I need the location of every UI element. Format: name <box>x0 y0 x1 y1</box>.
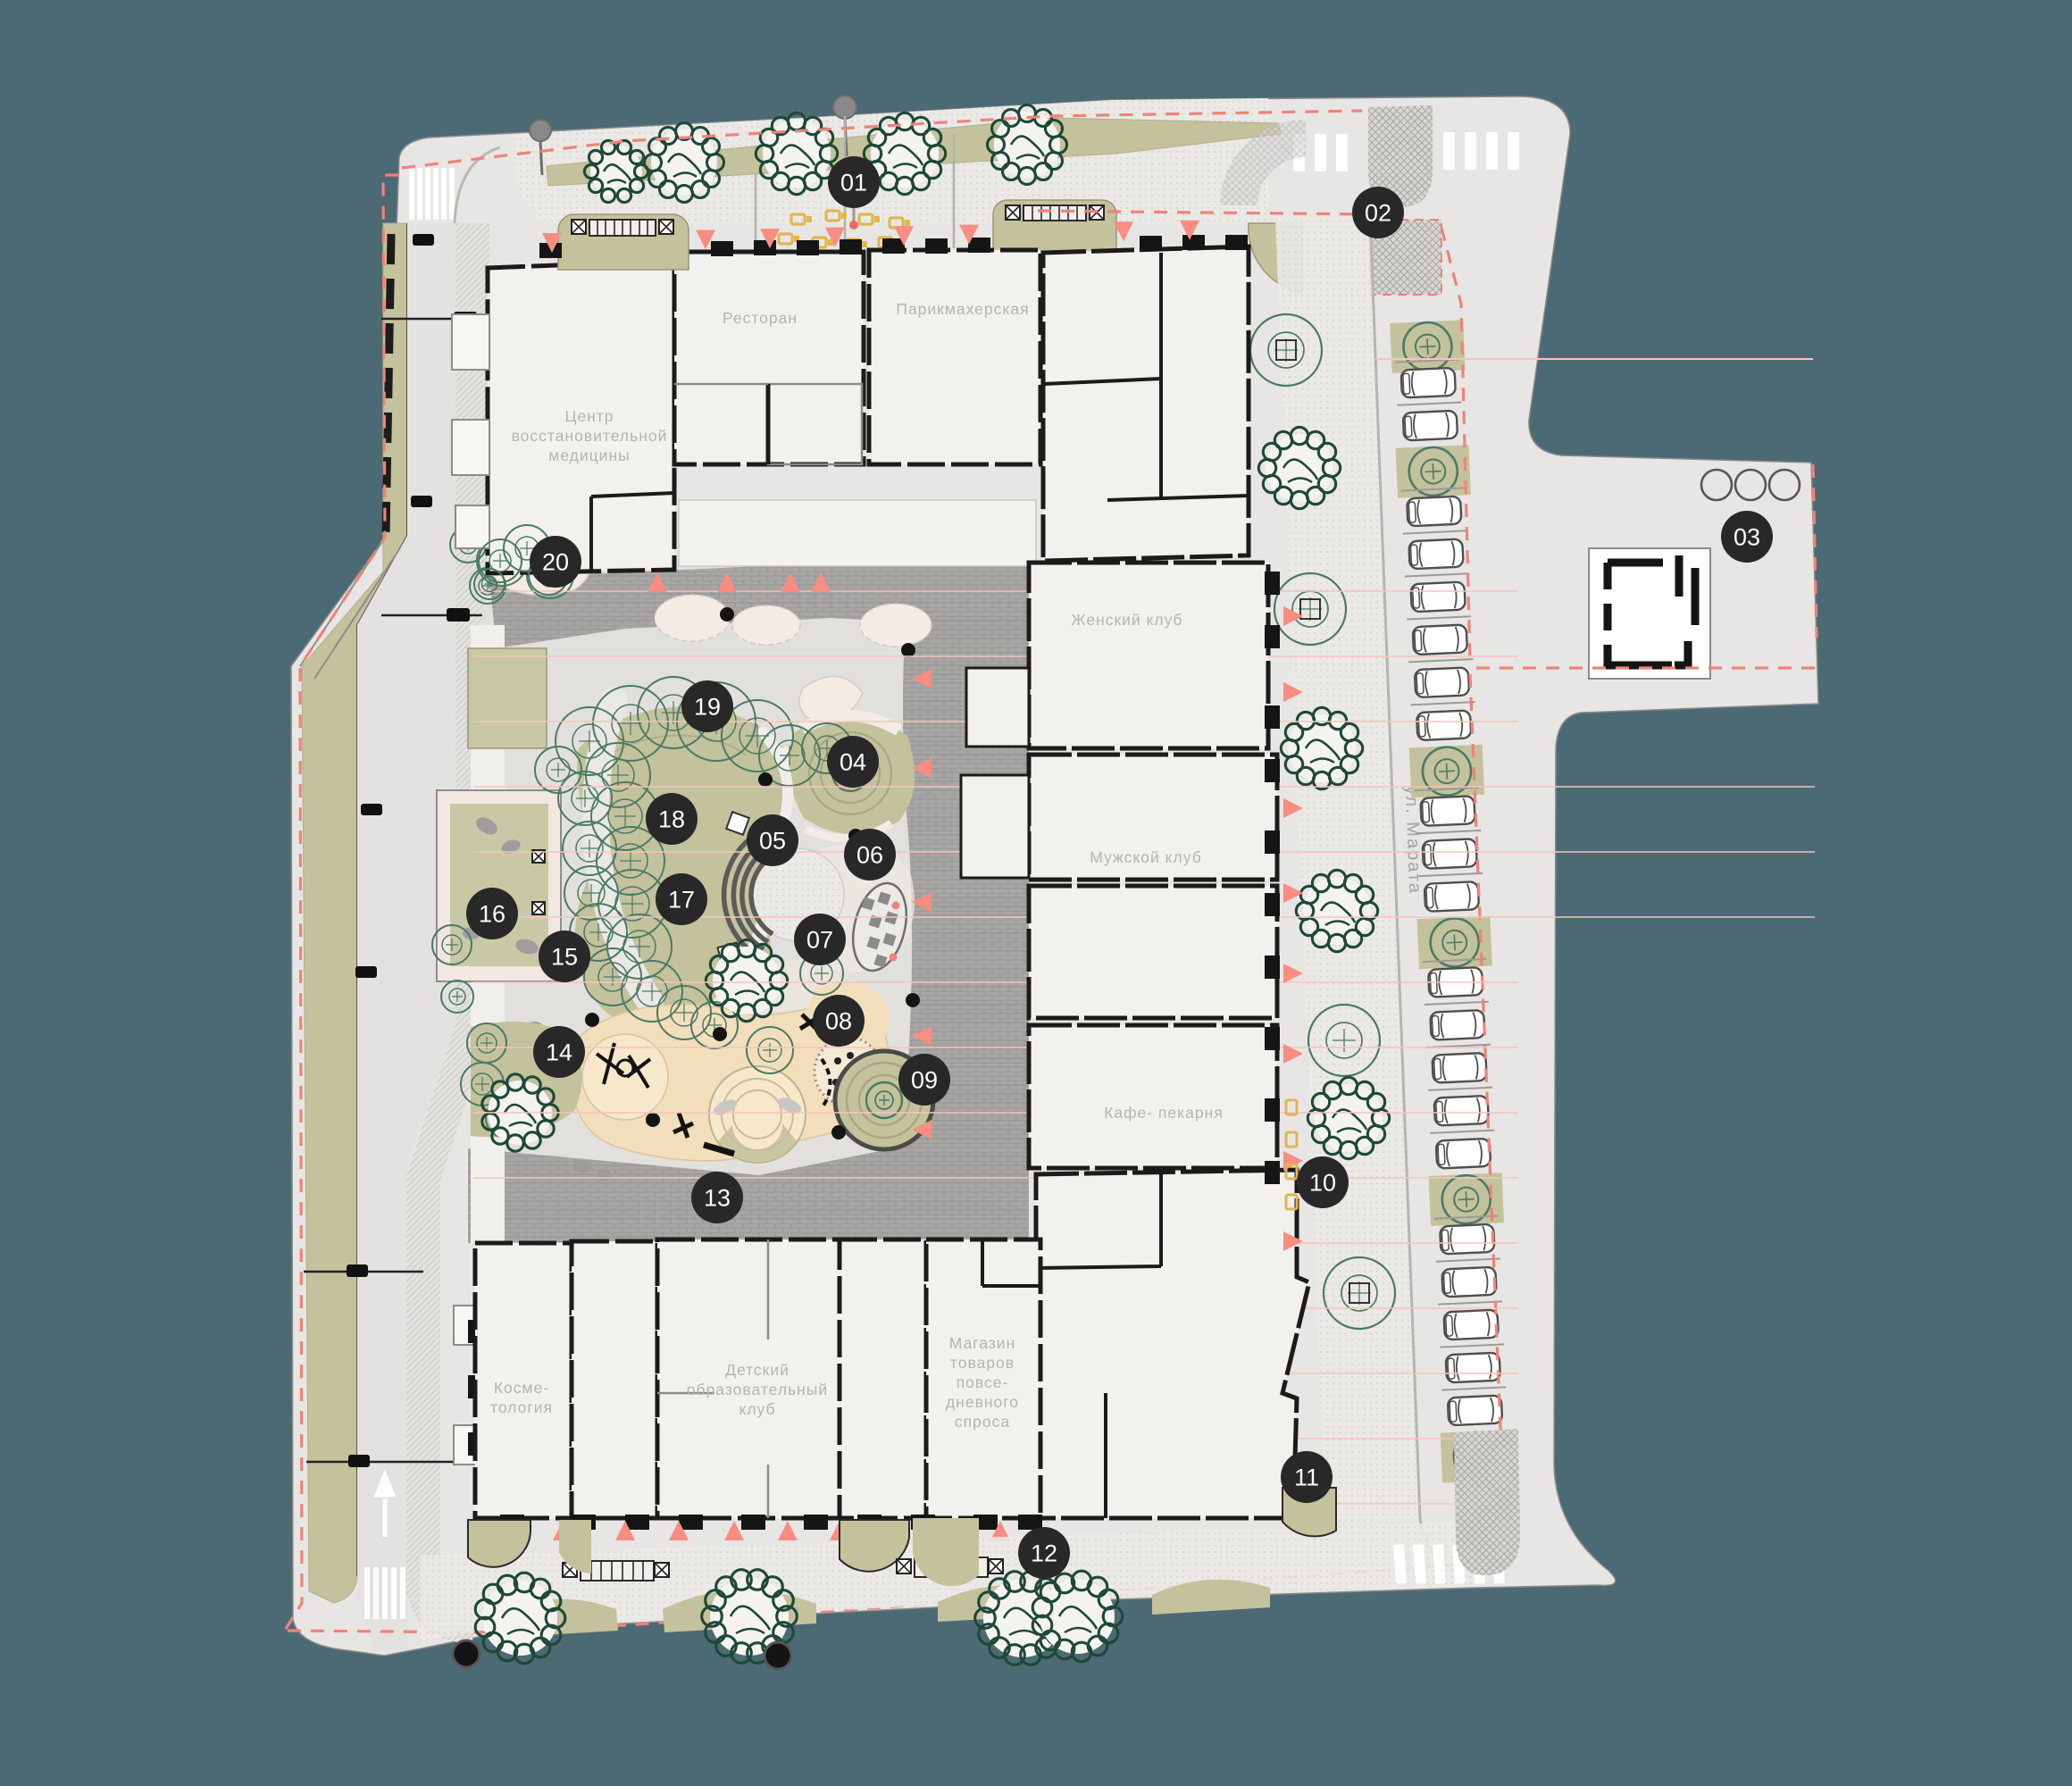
svg-text:07: 07 <box>806 927 833 954</box>
svg-text:01: 01 <box>840 170 867 196</box>
svg-text:18: 18 <box>658 806 685 833</box>
svg-text:Кафе- пекарня: Кафе- пекарня <box>1104 1104 1224 1122</box>
svg-text:03: 03 <box>1734 524 1760 551</box>
svg-text:Парикмахерская: Парикмахерская <box>896 300 1029 318</box>
svg-text:20: 20 <box>542 549 569 576</box>
svg-text:17: 17 <box>668 887 695 914</box>
svg-text:16: 16 <box>479 901 505 928</box>
svg-text:Мужской клуб: Мужской клуб <box>1090 848 1201 866</box>
svg-text:13: 13 <box>704 1185 731 1212</box>
svg-text:04: 04 <box>840 749 866 776</box>
svg-text:14: 14 <box>546 1039 572 1066</box>
svg-text:09: 09 <box>911 1067 938 1094</box>
svg-text:19: 19 <box>694 694 721 721</box>
svg-text:02: 02 <box>1365 200 1391 227</box>
svg-text:15: 15 <box>551 944 578 971</box>
svg-text:08: 08 <box>825 1008 852 1035</box>
svg-text:05: 05 <box>759 828 786 855</box>
svg-text:12: 12 <box>1031 1540 1057 1567</box>
svg-text:Женский клуб: Женский клуб <box>1071 611 1182 629</box>
svg-text:06: 06 <box>856 842 883 869</box>
svg-text:10: 10 <box>1309 1170 1336 1197</box>
svg-text:11: 11 <box>1294 1465 1319 1491</box>
svg-text:Ресторан: Ресторан <box>723 309 798 327</box>
svg-text:Магазинтоваровповсе-дневногосп: Магазинтоваровповсе-дневногоспроса <box>946 1334 1019 1431</box>
